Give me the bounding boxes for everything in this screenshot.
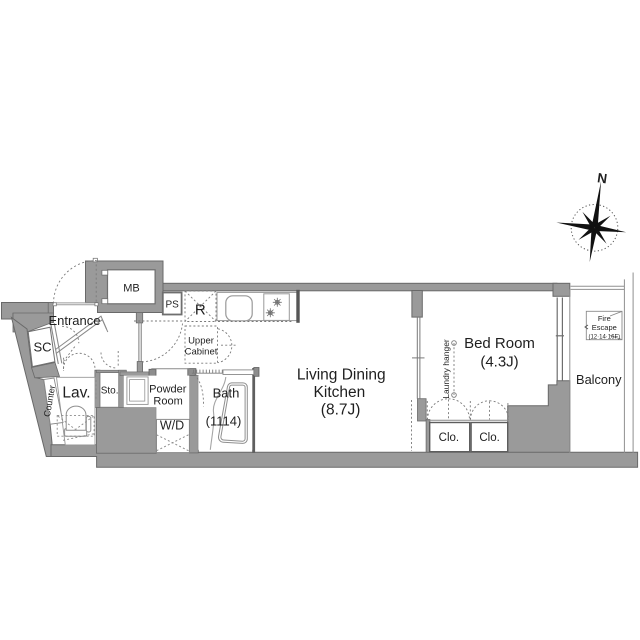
svg-text:Laundry hanger: Laundry hanger (441, 339, 451, 399)
svg-text:(8.7J): (8.7J) (321, 402, 361, 419)
svg-text:Living Dining: Living Dining (297, 367, 386, 384)
svg-text:Clo.: Clo. (479, 432, 499, 444)
svg-text:Fire: Fire (598, 314, 611, 323)
svg-text:MB: MB (123, 283, 140, 295)
svg-text:Bath: Bath (213, 386, 240, 401)
svg-text:PS: PS (166, 300, 180, 311)
svg-text:Entrance: Entrance (48, 313, 100, 328)
svg-text:Cabinet: Cabinet (185, 347, 218, 358)
svg-text:Lav.: Lav. (62, 385, 90, 402)
svg-text:(1114): (1114) (206, 414, 242, 429)
svg-text:Powder: Powder (149, 384, 187, 396)
svg-text:Kitchen: Kitchen (314, 384, 366, 401)
svg-text:Clo.: Clo. (439, 432, 459, 444)
svg-text:W/D: W/D (160, 419, 184, 433)
svg-text:(12·14·16F): (12·14·16F) (588, 335, 620, 341)
svg-text:(4.3J): (4.3J) (480, 354, 518, 371)
svg-text:SC: SC (33, 340, 51, 355)
svg-text:Room: Room (153, 396, 182, 408)
svg-text:N: N (596, 170, 608, 186)
svg-text:R: R (195, 302, 206, 319)
svg-text:Upper: Upper (188, 336, 214, 347)
svg-text:Escape: Escape (592, 323, 617, 332)
svg-text:Balcony: Balcony (576, 372, 622, 387)
svg-text:Bed Room: Bed Room (464, 335, 535, 352)
svg-text:Sto.: Sto. (101, 386, 119, 397)
